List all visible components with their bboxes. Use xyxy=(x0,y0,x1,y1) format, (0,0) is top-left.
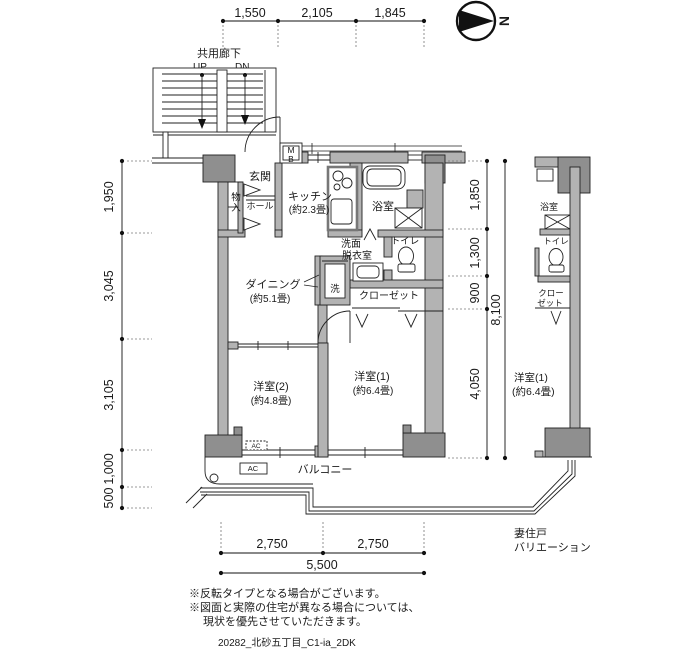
washbasin-icon xyxy=(353,263,383,281)
closet-label: クローゼット xyxy=(359,290,419,302)
dim-right-4: 4,050 xyxy=(468,368,482,399)
dim-left-2: 3,045 xyxy=(102,270,116,301)
vent-duct-icon xyxy=(395,208,422,228)
washing-machine-icon xyxy=(320,256,350,305)
compass-north-label: N xyxy=(496,16,512,26)
bedroom1-size-label: (約6.4畳) xyxy=(353,384,394,397)
stove-burner-icon xyxy=(342,178,352,188)
plan-id: 20282_北砂五丁目_C1-ia_2DK xyxy=(218,636,356,649)
dim-top-3: 1,845 xyxy=(374,6,405,20)
variation-caption-2: バリエーション xyxy=(514,541,591,554)
column xyxy=(205,435,242,457)
dim-top-2: 2,105 xyxy=(301,6,332,20)
ac-outdoor-label: AC xyxy=(248,464,259,473)
var-closet-label-1: クロー xyxy=(538,288,564,298)
note-line-2: ※図面と実際の住宅が異なる場合については、 xyxy=(189,600,419,614)
floorplan-drawing: 1,550 2,105 1,845 N 共用廊下 UP DN xyxy=(0,0,700,650)
var-toilet-label: トイレ xyxy=(543,236,569,246)
var-bedroom1-size-label: (約6.4畳) xyxy=(512,385,555,398)
variation-caption-1: 妻住戸 xyxy=(514,526,547,540)
balcony-label: バルコニー xyxy=(298,463,353,476)
kitchen-sink-icon xyxy=(331,199,352,224)
dim-top-1: 1,550 xyxy=(234,6,265,20)
left-dimension xyxy=(120,159,152,510)
var-bedroom1-label: 洋室(1) xyxy=(514,371,548,384)
balcony xyxy=(186,441,575,514)
top-dimension xyxy=(221,19,426,48)
bath-label: 浴室 xyxy=(372,199,394,213)
bathtub-icon xyxy=(363,166,405,189)
stairs xyxy=(153,68,276,158)
dim-bottom-2: 2,750 xyxy=(357,537,388,551)
floorplan-page: 1,550 2,105 1,845 N 共用廊下 UP DN xyxy=(0,0,700,650)
corridor-label: 共用廊下 xyxy=(197,46,241,60)
kitchen-counter-icon xyxy=(328,167,357,230)
hall-label: ホール xyxy=(246,201,273,211)
note-line-3: 現状を優先させていただきます。 xyxy=(203,614,367,628)
ac-sleeve-label: AC xyxy=(251,443,260,450)
washroom-label-2: 脱衣室 xyxy=(342,249,372,262)
dim-right-3: 900 xyxy=(468,283,482,304)
column xyxy=(545,428,590,457)
storage-label: 物入 xyxy=(226,192,239,213)
dim-right-total: 8,100 xyxy=(489,294,503,325)
dim-left-3: 3,105 xyxy=(102,379,116,410)
drain-icon xyxy=(210,474,218,482)
dim-bottom-1: 2,750 xyxy=(256,537,287,551)
dim-right-2: 1,300 xyxy=(468,237,482,268)
column xyxy=(403,433,445,457)
var-closet-label-2: ゼット xyxy=(537,298,563,308)
toilet-icon xyxy=(398,247,415,272)
column xyxy=(203,155,235,182)
kitchen-size-label: (約2.3畳) xyxy=(289,203,330,216)
vent-duct-icon xyxy=(545,215,570,229)
kitchen-label: キッチン xyxy=(288,190,332,203)
entrance-label: 玄関 xyxy=(249,169,271,183)
meter-box-label-b: B xyxy=(288,154,294,164)
bedroom1-label: 洋室(1) xyxy=(354,369,389,383)
dim-right-1: 1,850 xyxy=(468,179,482,210)
toilet-label: トイレ xyxy=(391,236,420,247)
dining-size-label: (約5.1畳) xyxy=(250,292,291,305)
dim-bottom-total: 5,500 xyxy=(306,558,337,572)
washer-label: 洗 xyxy=(330,283,340,295)
dining-label: ダイニング xyxy=(246,277,301,291)
toilet-icon xyxy=(549,249,564,273)
stove-burner-icon xyxy=(333,171,343,181)
dim-left-1: 1,950 xyxy=(102,181,116,212)
dim-left-4: 1,000 xyxy=(102,453,116,484)
bedroom2-label: 洋室(2) xyxy=(253,379,288,393)
washroom-label-1: 洗面 xyxy=(341,238,361,250)
bedroom2-size-label: (約4.8畳) xyxy=(251,394,292,407)
compass: N xyxy=(457,2,512,40)
stove-burner-icon xyxy=(334,184,340,190)
dim-left-5: 500 xyxy=(102,488,116,509)
var-bath-label: 浴室 xyxy=(540,201,558,212)
note-line-1: ※反転タイプとなる場合がございます。 xyxy=(189,586,386,600)
